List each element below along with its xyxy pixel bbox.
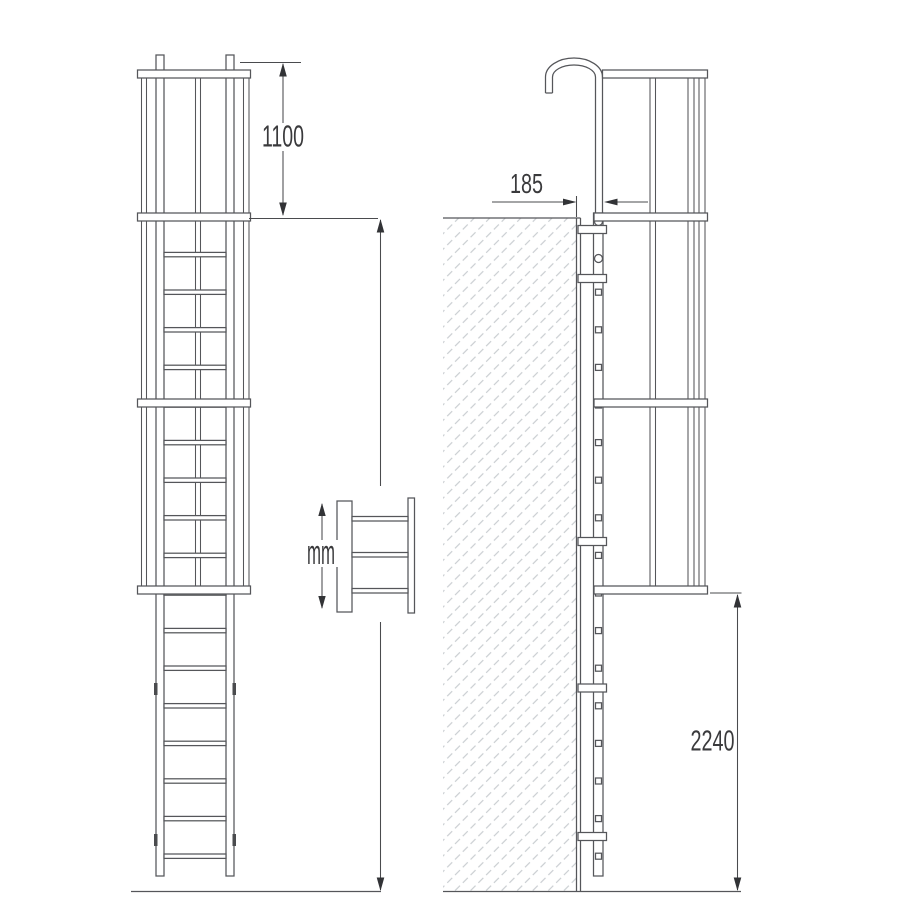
dimension-arrow-down	[734, 878, 742, 892]
dimension-label-2240: 2240	[691, 726, 735, 758]
cage-hoop-side	[603, 70, 708, 78]
wall-hatch	[443, 218, 577, 892]
dimension-label-185: 185	[510, 168, 543, 199]
ladder-rung	[164, 816, 226, 820]
dimension-label-1100: 1100	[262, 119, 304, 154]
rung-end	[596, 740, 602, 746]
cage-hoop-side	[594, 213, 708, 221]
stile-splice-mark	[154, 834, 158, 846]
ladder-rung	[164, 704, 226, 708]
wall-bracket	[578, 226, 607, 234]
ladder-rung	[164, 328, 226, 332]
ladder-stile-left	[156, 55, 164, 876]
ladder-stile-right	[226, 55, 234, 876]
dimension-handrail-extension: 1100	[240, 63, 305, 217]
detail-rung	[352, 517, 408, 522]
ladder-rung	[164, 628, 226, 632]
stile-splice-mark	[233, 834, 237, 846]
rung-end	[596, 628, 602, 634]
ladder-rung	[164, 440, 226, 444]
cage-hoop	[138, 399, 251, 407]
detail-rail	[408, 498, 415, 613]
wall-bracket	[578, 275, 607, 283]
ladder-rung	[164, 779, 226, 783]
stile-splice-mark	[233, 683, 237, 695]
dimension-wall-offset: 185	[492, 168, 648, 217]
wall-bracket	[578, 538, 607, 546]
ladder-rung	[164, 365, 226, 369]
ladder-rung	[164, 478, 226, 482]
cage-hoop	[138, 586, 251, 594]
detail-rung	[352, 589, 408, 594]
rung-end	[596, 552, 602, 558]
hook-bolt	[595, 255, 603, 263]
ladder-technical-drawing: 1100 mm	[0, 0, 900, 900]
dimension-arrow-right	[563, 199, 577, 206]
wall-section	[443, 218, 581, 892]
cage-side-strap	[650, 78, 656, 586]
rung-end	[596, 289, 602, 295]
wall-face	[577, 218, 581, 892]
cage-strap-left	[142, 74, 147, 590]
cage-hoop	[138, 70, 251, 78]
dimension-lower-height: 2240	[689, 593, 742, 891]
detail-rung	[352, 553, 408, 558]
dimension-arrow-down	[279, 203, 287, 217]
dimension-arrow-left	[604, 199, 618, 206]
cage-hoop-side	[594, 399, 708, 407]
rung-end	[596, 440, 602, 446]
ladder-rung	[164, 854, 226, 858]
rung-end	[596, 327, 602, 333]
rung-end	[596, 515, 602, 521]
dimension-arrow-up	[377, 219, 385, 233]
rung-end	[596, 853, 602, 859]
ladder-rung	[164, 553, 226, 557]
wall-bracket	[578, 684, 607, 692]
dimension-arrow-up	[734, 594, 742, 608]
cage-side-strap	[688, 78, 694, 586]
dimension-arrow-down	[377, 878, 385, 892]
rung-end	[596, 778, 602, 784]
ladder-rung	[164, 290, 226, 294]
rung-end	[596, 477, 602, 483]
wall-bracket	[578, 833, 607, 841]
front-view-caged-ladder	[138, 55, 251, 876]
cage-back-rail	[699, 78, 705, 586]
dimension-arrow-up	[279, 63, 287, 77]
rung-detail-view: mm	[300, 486, 422, 622]
rung-end	[596, 703, 602, 709]
rung-end	[596, 816, 602, 822]
dimension-label-mm: mm	[307, 534, 335, 572]
ladder-rung	[164, 666, 226, 670]
cage-strap-right	[244, 74, 250, 590]
ladder-rung	[164, 516, 226, 520]
rung-end	[596, 665, 602, 671]
cage-hoop	[138, 213, 251, 221]
ladder-rung	[164, 741, 226, 745]
ladder-rung	[164, 252, 226, 256]
drawing-canvas: 1100 mm	[0, 0, 900, 900]
rung-end	[596, 364, 602, 370]
walkthrough-hook	[546, 58, 603, 222]
cage-hoop-side	[594, 586, 708, 594]
stile-splice-mark	[154, 683, 158, 695]
